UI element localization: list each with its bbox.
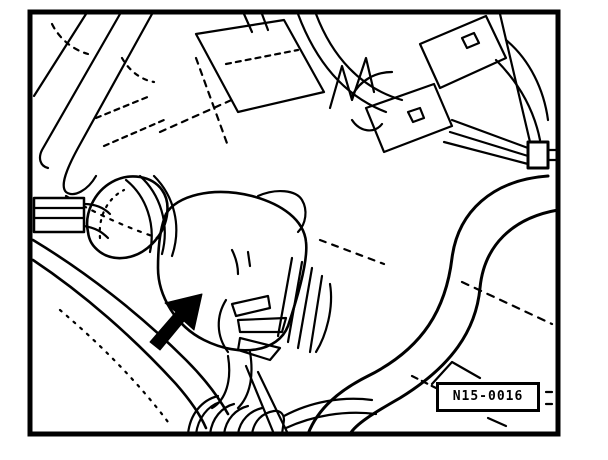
figure-number: N15-0016 <box>453 389 524 404</box>
figure-number-badge: N15-0016 <box>436 382 540 412</box>
illustration-frame <box>30 12 558 434</box>
illustration-canvas: N15-0016 <box>0 0 608 460</box>
